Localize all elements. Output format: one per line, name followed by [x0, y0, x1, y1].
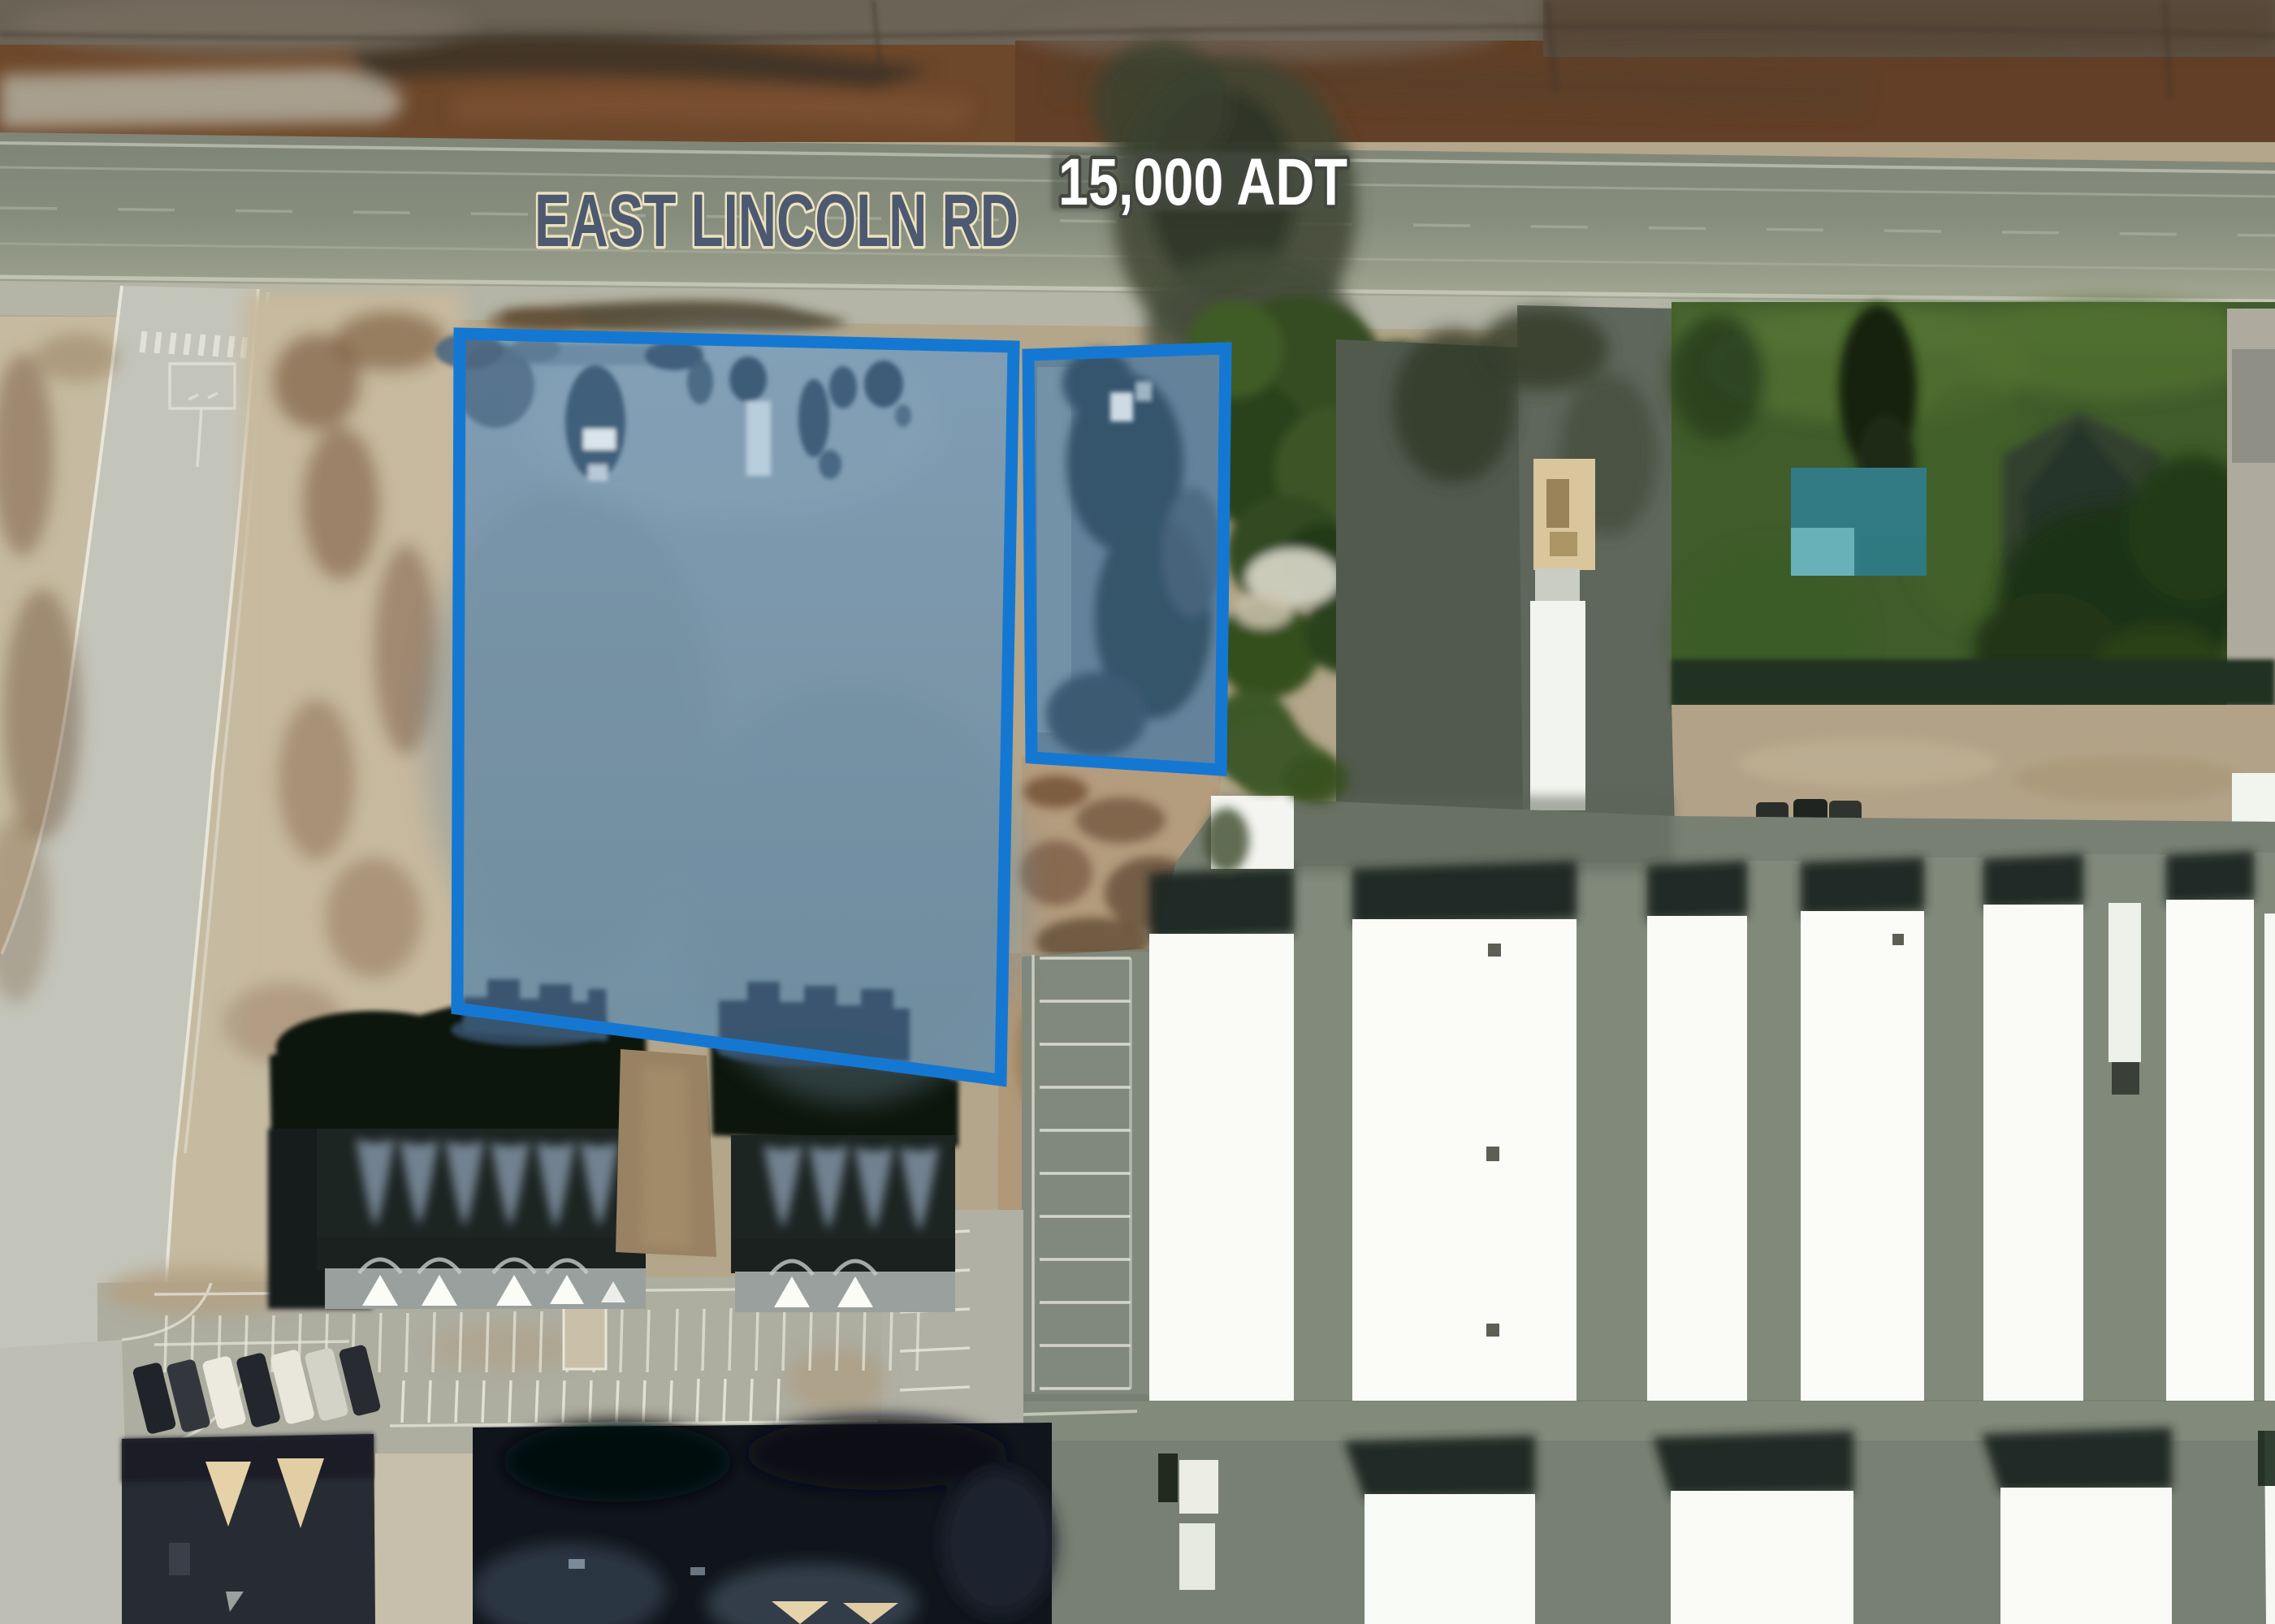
- svg-text:EAST LINCOLN RD: EAST LINCOLN RD: [534, 179, 1019, 262]
- svg-text:15,000 ADT: 15,000 ADT: [1058, 145, 1347, 219]
